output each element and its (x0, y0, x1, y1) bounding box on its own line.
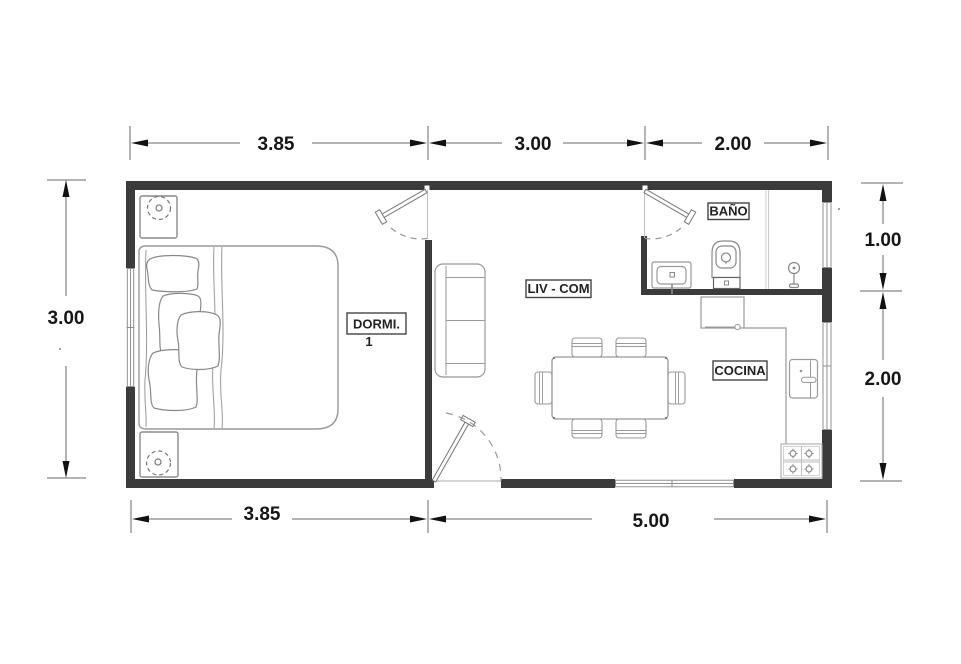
svg-text:3.85: 3.85 (244, 504, 281, 525)
svg-text:3.00: 3.00 (515, 134, 552, 155)
svg-text:1.00: 1.00 (865, 230, 902, 251)
svg-text:LIV - COM: LIV - COM (527, 281, 589, 296)
svg-text:DORMI.: DORMI. (353, 317, 400, 332)
svg-text:1: 1 (365, 334, 372, 349)
svg-text:3.85: 3.85 (258, 134, 295, 155)
svg-text:3.00: 3.00 (48, 308, 85, 329)
svg-text:5.00: 5.00 (633, 511, 670, 532)
svg-text:BAÑO: BAÑO (709, 204, 747, 219)
svg-text:2.00: 2.00 (715, 134, 752, 155)
svg-text:COCINA: COCINA (714, 363, 766, 378)
svg-text:2.00: 2.00 (865, 369, 902, 390)
